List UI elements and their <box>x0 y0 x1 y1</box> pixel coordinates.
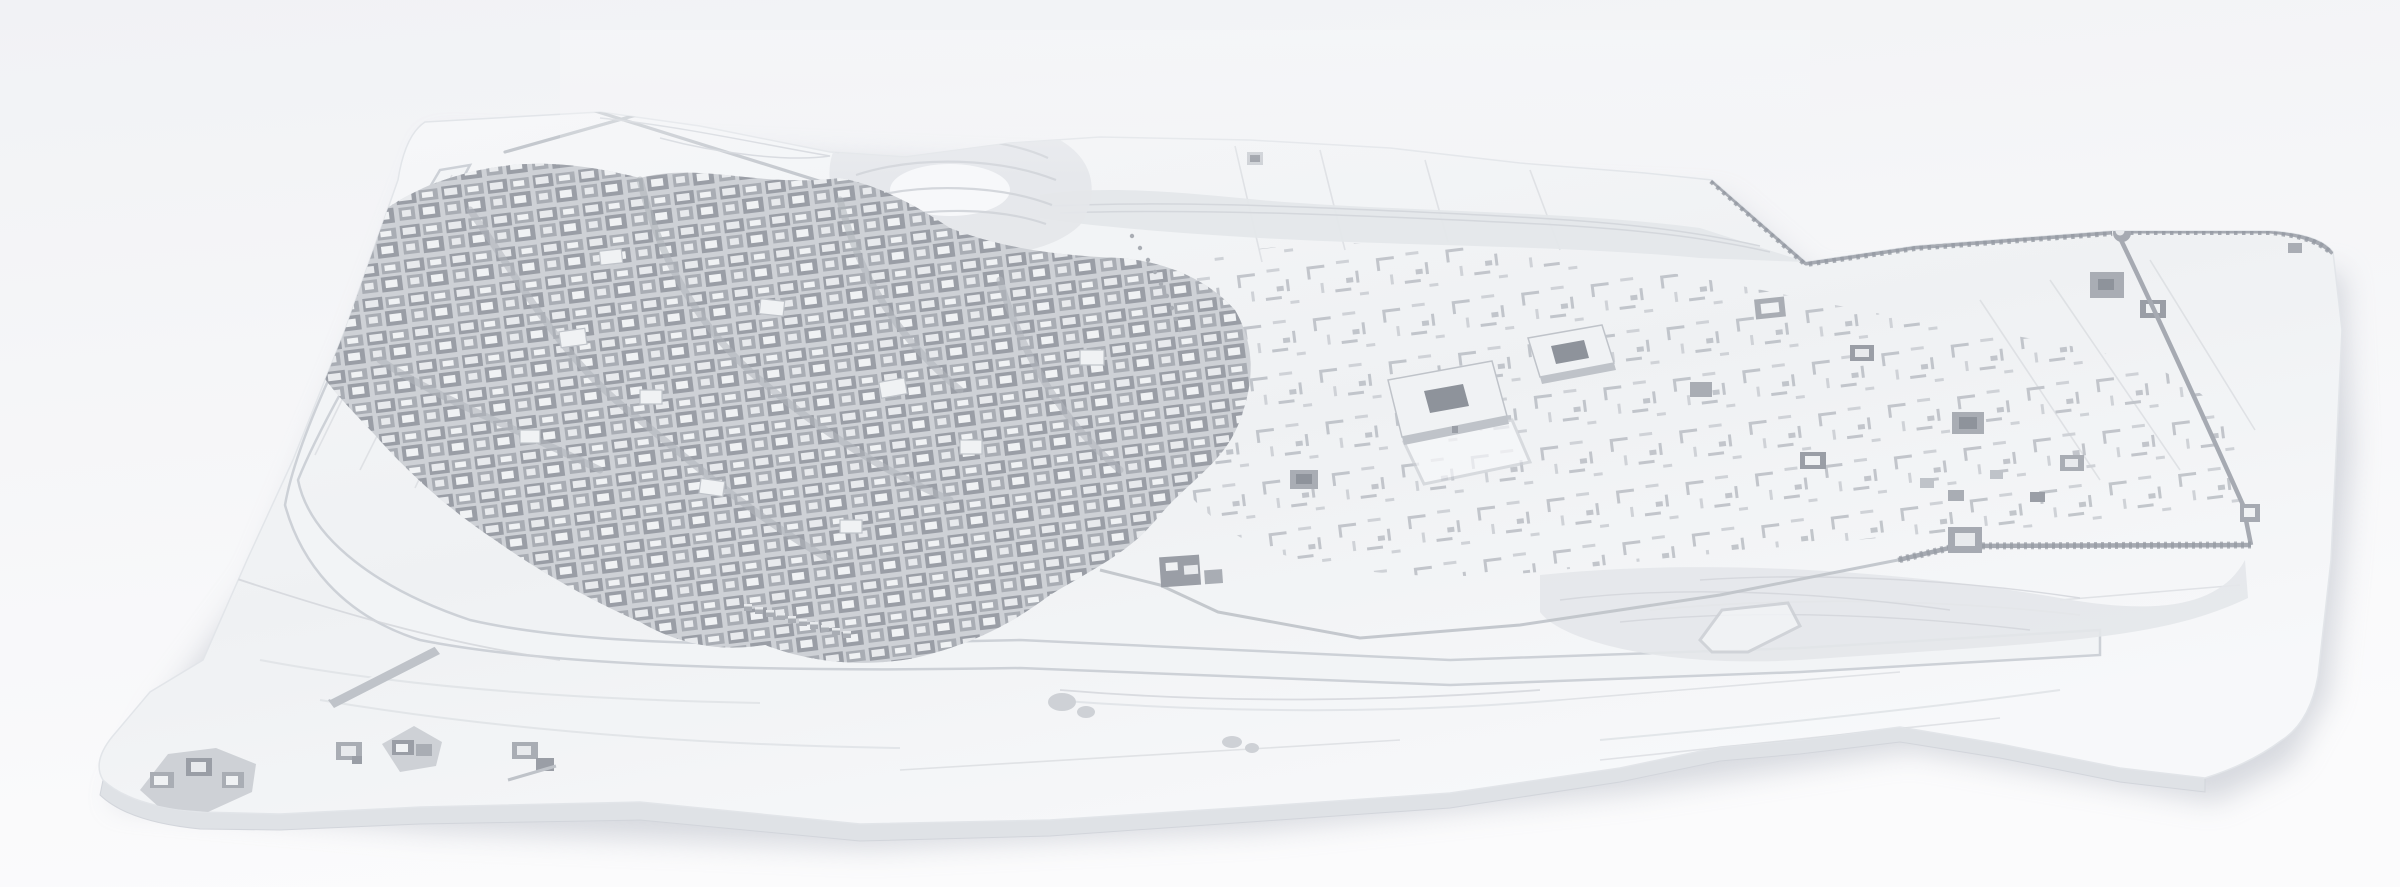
square-compound <box>2090 272 2124 298</box>
fog-overlay <box>560 30 1810 180</box>
city-model-figure <box>0 0 2400 887</box>
northeast-gate <box>2288 243 2302 253</box>
gate-tower-west <box>1948 527 1982 553</box>
gate-tower-east <box>2240 504 2260 522</box>
caravanserai-a-gate <box>1452 426 1458 433</box>
city-model-render <box>0 0 2400 887</box>
